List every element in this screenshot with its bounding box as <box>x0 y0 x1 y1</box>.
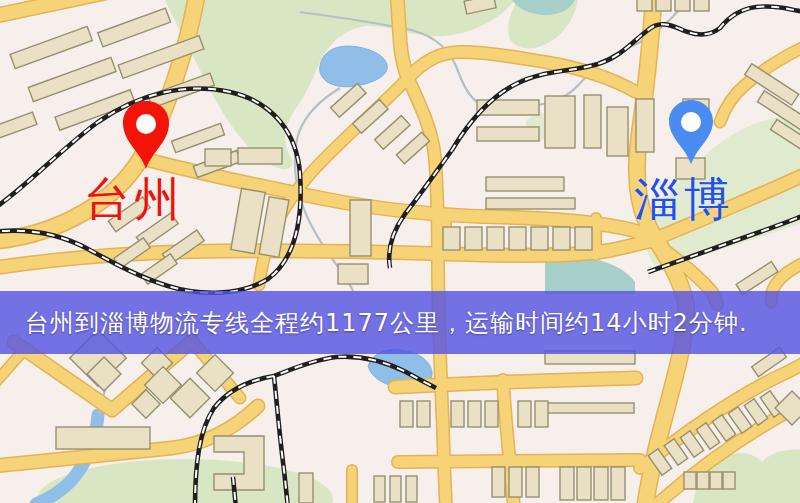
route-info-banner: 台州到淄博物流专线全程约1177公里，运输时间约14小时2分钟. <box>0 291 800 354</box>
destination-city-label: 淄博 <box>634 176 734 222</box>
logistics-route-map: 台州 淄博 台州到淄博物流专线全程约1177公里，运输时间约14小时2分钟. <box>0 0 800 503</box>
pin-hole <box>681 112 701 132</box>
pin-hole <box>136 114 156 134</box>
origin-city-label: 台州 <box>84 176 184 222</box>
map-canvas[interactable] <box>0 0 800 503</box>
route-info-text: 台州到淄博物流专线全程约1177公里，运输时间约14小时2分钟. <box>25 307 748 339</box>
